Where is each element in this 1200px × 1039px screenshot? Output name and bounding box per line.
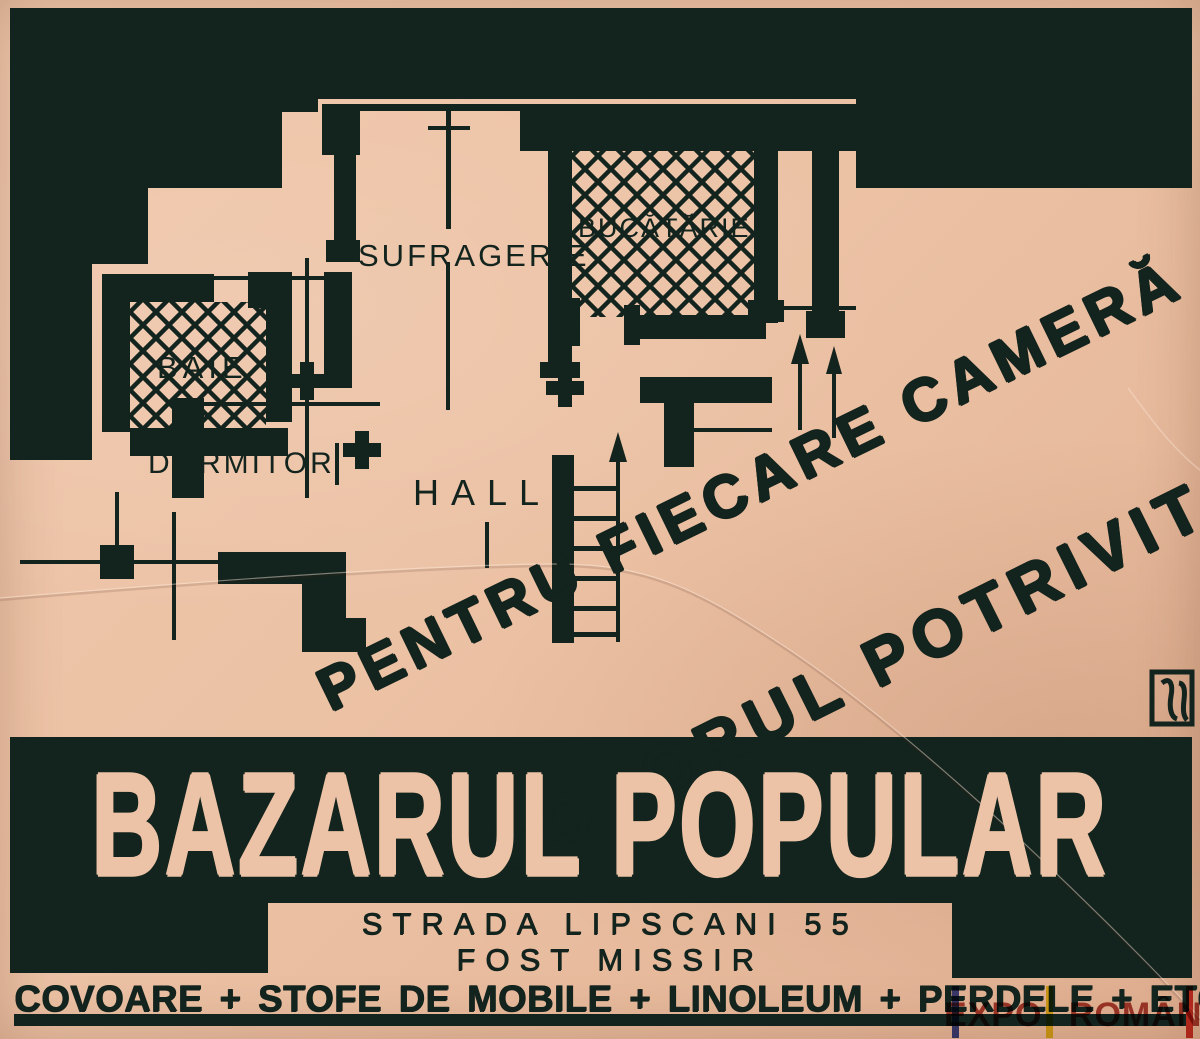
flag-bar-yellow — [1046, 986, 1053, 1038]
designer-monogram — [1152, 672, 1192, 724]
expo-romania-watermark: EXPO ROMÂNIA — [944, 996, 1200, 1035]
flag-bar-red — [1186, 986, 1193, 1038]
room-label-hall: HALL — [413, 472, 551, 513]
room-label-bucatarie: BUCĂTĂRIE — [578, 213, 751, 243]
flag-bar-blue — [952, 986, 959, 1038]
room-label-sufragerie: SUFRAGERIE — [358, 238, 590, 273]
store-name: BAZARUL POPULAR — [84, 724, 1116, 929]
address-line2: FOST MISSIR — [268, 942, 952, 978]
advert-poster: SUFRAGERIE BUCĂTĂRIE BAIE DORMITOR HALL … — [0, 0, 1200, 1039]
room-label-baie: BAIE — [157, 350, 248, 385]
room-label-dormitor: DORMITOR — [148, 447, 335, 480]
address-line1: STRADA LIPSCANI 55 — [268, 906, 952, 942]
